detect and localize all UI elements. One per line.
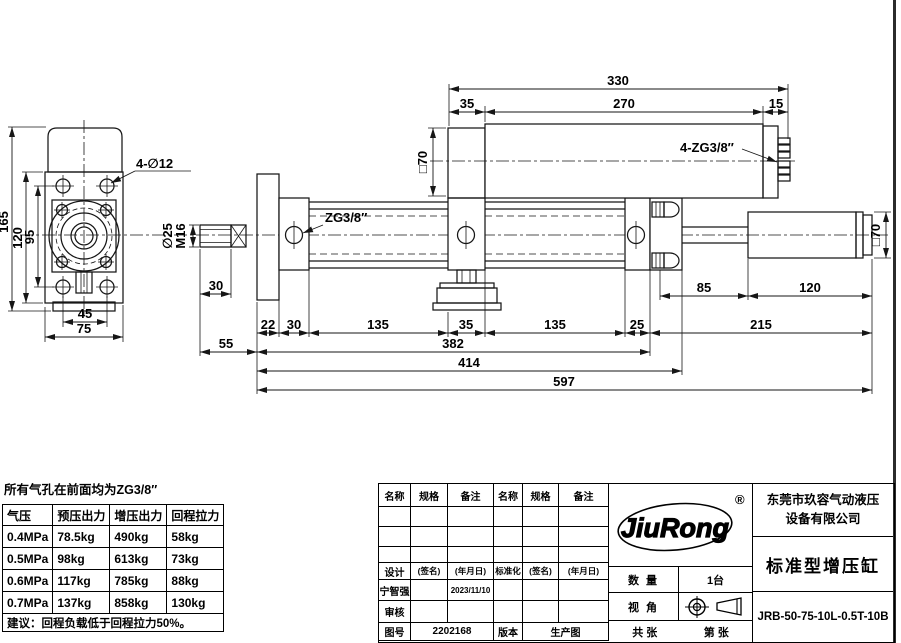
holes-label: 4-∅12 [136,156,173,171]
parts-cell [559,507,609,527]
registered-mark: ® [735,492,745,507]
sign-cell [559,601,609,623]
logo-cell: JiuRong ® [609,484,753,567]
sign-cell [448,601,494,623]
parts-cell [494,547,523,563]
booster-ports-label: 4-ZG3/8″ [680,140,734,155]
designer-name: 宁智强 [379,580,411,601]
cell: 785kg [110,570,167,592]
company-name: 东莞市玖容气动液压 设备有限公司 [753,484,893,537]
parts-cell [411,547,448,563]
dim-85: 85 [697,280,711,295]
standard-label: 标准化 [494,563,523,580]
port-label: ZG3/8″ [325,210,367,225]
quantity-label: 数 量 [609,567,679,593]
rod-thread-label: M16 [173,223,188,248]
dim-55: 55 [219,336,233,351]
model-number: JRB-50-75-10L-0.5T-10B [753,592,893,641]
parts-cell [411,507,448,527]
cell: 490kg [110,526,167,548]
booster-square-label: □70 [415,151,430,173]
dim-597: 597 [553,374,575,389]
cell: 613kg [110,548,167,570]
parts-cell [494,527,523,547]
parts-cell [559,547,609,563]
parts-cell [411,527,448,547]
sign-cell [411,601,448,623]
dim-330: 330 [607,73,629,88]
sign-cell [411,580,448,601]
parts-cell [523,547,559,563]
sign-hint: (签名) [411,563,448,580]
parts-cell [559,527,609,547]
table-row: 0.4MPa 78.5kg 490kg 58kg [3,526,224,548]
dim-front-45: 45 [78,306,92,321]
force-table-panel: 所有气孔在前面均为ZG3/8″ 气压 预压出力 增压出力 回程拉力 0.4MPa… [2,479,220,632]
sign-cell [523,601,559,623]
parts-cell [523,527,559,547]
version-label: 版本 [494,623,523,641]
dim-15: 15 [769,96,783,111]
cell: 130kg [167,592,224,614]
col-returnpull: 回程拉力 [167,505,224,526]
cell: 117kg [53,570,110,592]
cell: 0.5MPa [3,548,53,570]
dim-135a: 135 [367,317,389,332]
dim-front-95: 95 [22,230,37,244]
design-date: 2023/11/10 [448,580,494,601]
parts-cell [448,527,494,547]
date-hint: (年月日) [559,563,609,580]
dim-22: 22 [261,317,275,332]
technical-drawing: 165 120 95 45 75 4-∅12 ∅25 M16 30 [0,0,901,475]
view-angle-symbol [679,593,753,621]
cell: 0.4MPa [3,526,53,548]
cell: 0.7MPa [3,592,53,614]
parts-cell [448,547,494,563]
dim-25: 25 [630,317,644,332]
dim-35: 35 [459,317,473,332]
jiurong-logo: JiuRong ® [611,486,751,564]
parts-cell [448,507,494,527]
company-line1: 东莞市玖容气动液压 [767,491,880,510]
table-row: 0.7MPa 137kg 858kg 130kg [3,592,224,614]
booster-cylinder: 4-ZG3/8″ □70 [415,124,798,198]
check-label: 审核 [379,601,411,623]
sign-cell [494,601,523,623]
total-sheets-label: 共 张 [632,624,657,640]
parts-header: 备注 [448,484,494,507]
cell: 98kg [53,548,110,570]
dim-414: 414 [458,355,480,370]
quantity-value: 1台 [679,567,753,593]
design-label: 设计 [379,563,411,580]
booster-fittings [778,138,790,181]
dim-rod-30: 30 [209,278,223,293]
dim-35-top: 35 [460,96,474,111]
sign-cell [559,580,609,601]
table-row: 0.6MPa 117kg 785kg 88kg [3,570,224,592]
cell: 78.5kg [53,526,110,548]
parts-cell [379,527,411,547]
force-table: 气压 预压出力 增压出力 回程拉力 0.4MPa 78.5kg 490kg 58… [2,504,224,632]
cell: 0.6MPa [3,570,53,592]
dim-120: 120 [799,280,821,295]
company-line2: 设备有限公司 [767,510,880,529]
dim-270: 270 [613,96,635,111]
dim-215: 215 [750,317,772,332]
drawing-no-label: 图号 [379,623,411,641]
col-boostforce: 增压出力 [110,505,167,526]
output-square-label: □70 [868,224,883,246]
parts-header: 名称 [494,484,523,507]
drawing-no: 2202168 [411,623,494,641]
logo-text: JiuRong [621,513,729,543]
title-block-left-table: 名称 规格 备注 名称 规格 备注 设计 (签名) (年月日) 标准化 (签名)… [379,484,609,641]
parts-cell [379,507,411,527]
parts-header: 规格 [523,484,559,507]
sign-hint: (签名) [523,563,559,580]
title-block: 名称 规格 备注 名称 规格 备注 设计 (签名) (年月日) 标准化 (签名)… [378,483,895,643]
ports-note: 所有气孔在前面均为ZG3/8″ [4,479,220,498]
col-pressure: 气压 [3,505,53,526]
suggestion-note: 建议：回程负载低于回程拉力50%。 [3,614,224,632]
dim-front-75: 75 [77,321,91,336]
table-row: 0.5MPa 98kg 613kg 73kg [3,548,224,570]
col-preforce: 预压出力 [53,505,110,526]
cell: 137kg [53,592,110,614]
sheets-row: 共 张 第 张 [609,621,753,642]
parts-cell [523,507,559,527]
cell: 88kg [167,570,224,592]
first-angle-projection-icon [685,595,747,619]
dim-135b: 135 [544,317,566,332]
parts-header: 备注 [559,484,609,507]
view-angle-label: 视 角 [609,593,679,621]
sheet-no-label: 第 张 [704,624,729,640]
parts-header: 规格 [411,484,448,507]
suggestion-row: 建议：回程负载低于回程拉力50%。 [3,614,224,632]
product-name: 标准型增压缸 [753,537,893,592]
force-table-header: 气压 预压出力 增压出力 回程拉力 [3,505,224,526]
mounting-holes [52,175,118,298]
parts-cell [494,507,523,527]
cell: 858kg [110,592,167,614]
dim-30: 30 [287,317,301,332]
date-hint: (年月日) [448,563,494,580]
parts-header: 名称 [379,484,411,507]
version-value: 生产图 [523,623,609,641]
cell: 73kg [167,548,224,570]
parts-cell [379,547,411,563]
sign-cell [523,580,559,601]
rear-rod: ∅25 M16 30 [160,223,246,298]
cell: 58kg [167,526,224,548]
sign-cell [494,580,523,601]
dim-382: 382 [442,336,464,351]
